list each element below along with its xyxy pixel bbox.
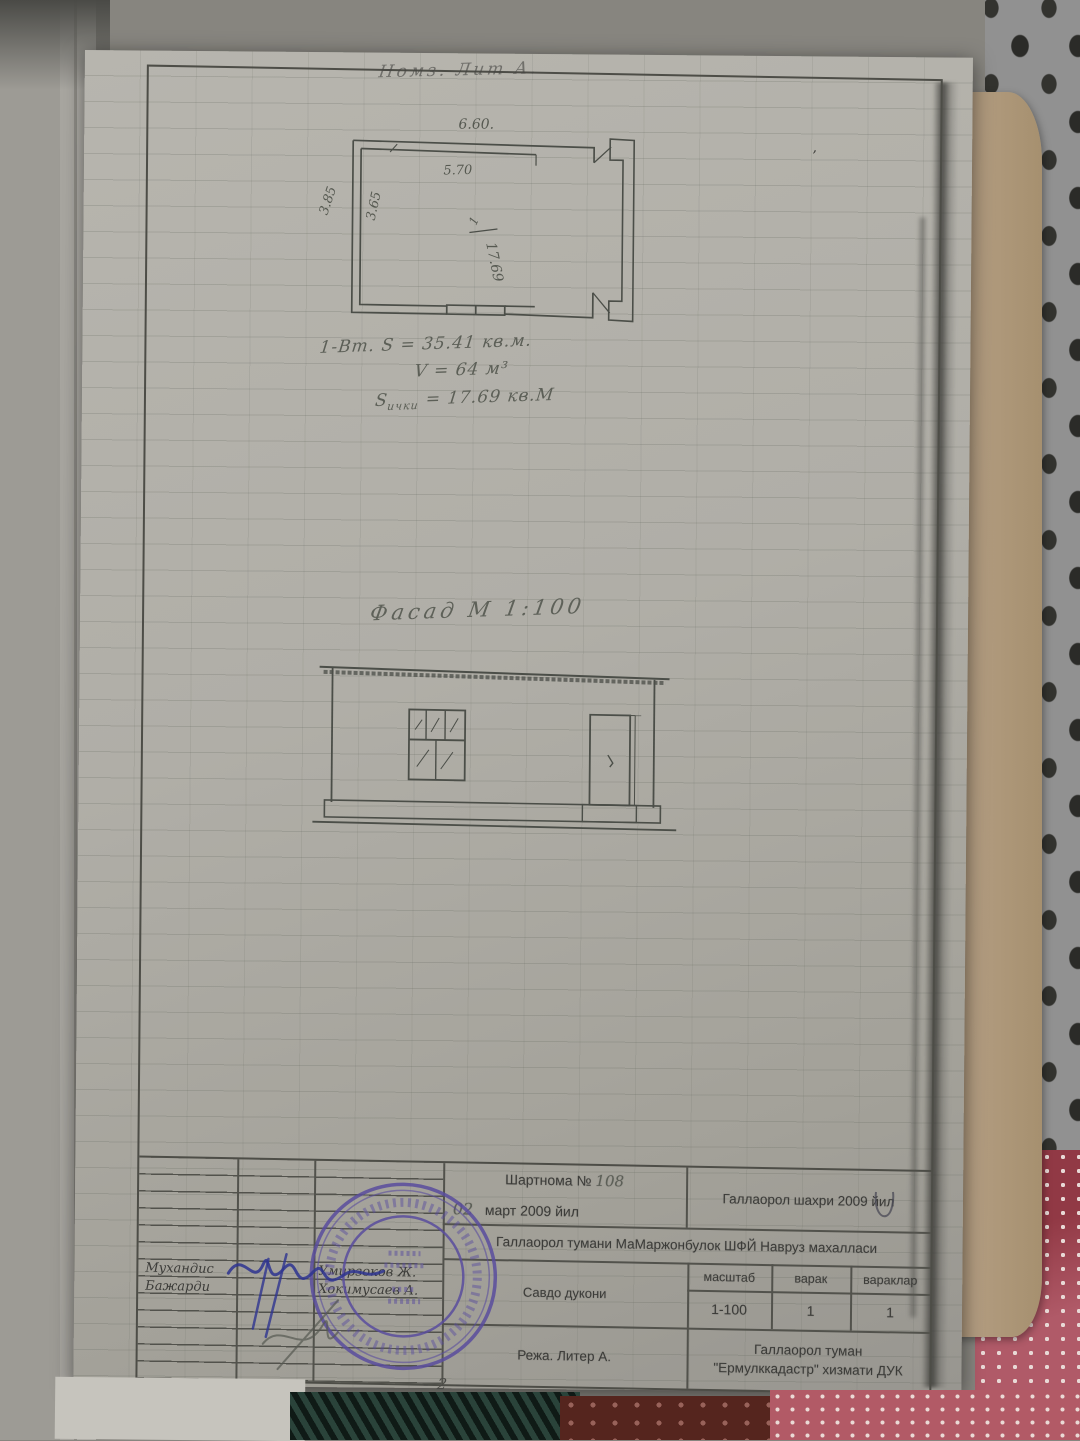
note-line-3: Sички = 17.69 кв.М: [374, 385, 556, 414]
dim-top-inner: 5.70: [443, 163, 472, 178]
dim-left-outer: 3.85: [317, 185, 340, 217]
engineer-label: Мухандис: [145, 1261, 214, 1277]
area-notes: 1-Вт. S = 35.41 кв.м. V = 64 м³ Sички = …: [312, 330, 562, 416]
page-number: - 2 -: [422, 1375, 464, 1393]
floor-plan-drawing: 6.60. 5.70 3.85 3.65 1 17.69: [296, 109, 688, 346]
note-line-2: V = 64 м³: [413, 357, 558, 382]
facade-drawing: [312, 650, 679, 847]
top-annotation: Номз. Лит А.: [377, 58, 540, 82]
sheets-header: вараклар: [850, 1266, 930, 1294]
scale-value: 1-100: [687, 1290, 771, 1330]
facade-caption: Фасад М 1:100: [368, 594, 587, 625]
drawing-frame: Номз. Лит А.: [135, 65, 942, 1396]
executor-label: Бажарди: [145, 1279, 210, 1295]
document-page: ’ Номз. Лит А.: [73, 50, 973, 1393]
pen-tick-mark: [872, 1188, 898, 1222]
room-area: 17.69: [482, 241, 506, 283]
pink-fabric-bottom: [770, 1390, 1080, 1440]
dim-top-outer: 6.60.: [458, 117, 494, 133]
teal-fabric-bottom: [290, 1392, 580, 1440]
signature: [207, 1218, 458, 1383]
sheet-value: 1: [771, 1291, 850, 1330]
dim-left-inner: 3.65: [364, 190, 385, 222]
paper-edge-bottom: [55, 1377, 306, 1441]
sheet-header: варак: [771, 1264, 850, 1292]
contract-number: 108: [595, 1172, 624, 1191]
scale-header: масштаб: [687, 1263, 771, 1292]
sheets-value: 1: [850, 1293, 930, 1332]
room-number: 1: [466, 214, 482, 227]
brown-fabric-bottom: [560, 1396, 790, 1440]
org-cell: Галлаорол туман "Ермулккадастр" хизмати …: [686, 1328, 930, 1393]
